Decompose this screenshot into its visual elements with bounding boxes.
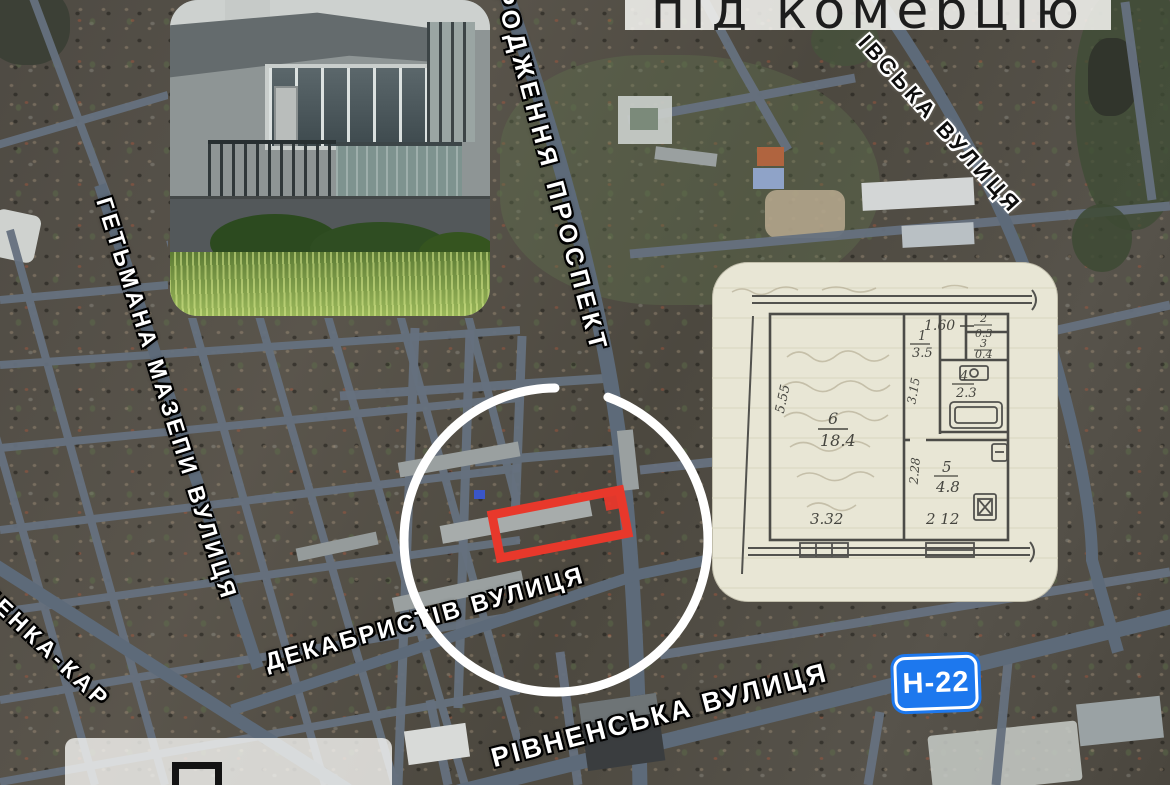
watermark-square-icon (172, 762, 222, 785)
photo-plinth (170, 196, 490, 267)
photo-bush (210, 214, 340, 272)
photo-bush (418, 232, 490, 278)
svg-text:2: 2 (979, 312, 987, 325)
watermark-letter: У (216, 778, 251, 785)
ad-banner-title: під комерцію (625, 0, 1111, 30)
svg-text:6: 6 (828, 409, 838, 428)
property-photo (170, 0, 490, 316)
photo-right-balcony (427, 22, 475, 142)
photo-door (274, 86, 298, 146)
watermark-letter: М (106, 778, 153, 785)
plan-dim-br: 2 12 (925, 510, 959, 528)
photo-window-band (265, 64, 435, 150)
photo-grass (170, 252, 490, 316)
plan-dim-top: 1.60 (924, 318, 955, 334)
watermark-letter: К (290, 778, 324, 785)
road-badge-h22: Н-22 (893, 655, 979, 712)
plan-dim-bl: 3.32 (810, 510, 843, 528)
svg-text:1: 1 (918, 329, 926, 344)
floorplan-inset: 1.60 2 0.3 3 0.4 1 3.5 3.15 4 2.3 5.55 6… (712, 262, 1058, 602)
svg-text:4: 4 (959, 369, 968, 384)
plan-dim-hall: 3.15 (904, 376, 922, 405)
svg-text:0.4: 0.4 (975, 348, 993, 361)
svg-text:18.4: 18.4 (820, 431, 856, 450)
highlight-circle (404, 388, 708, 692)
plan-dim-room5: 2.28 (907, 457, 923, 486)
svg-text:5: 5 (942, 458, 952, 476)
svg-text:2.3: 2.3 (955, 386, 977, 401)
ad-banner: під комерцію (625, 0, 1111, 30)
svg-text:3.5: 3.5 (912, 346, 933, 361)
plan-dim-width: 5.55 (773, 383, 794, 414)
listing-map-image: ГЕТЬМАНА МАЗЕПИ ВУЛИЦЯ РОДЖЕННЯ ПРОСПЕКТ… (0, 0, 1170, 785)
photo-railing (208, 140, 336, 200)
photo-balcony-slab (170, 0, 490, 90)
photo-railing-panel (336, 142, 462, 200)
highlight-rect-notch (603, 488, 624, 511)
watermark-letter: И (252, 778, 292, 785)
svg-text:4.8: 4.8 (935, 478, 960, 496)
photo-bush (310, 222, 450, 276)
